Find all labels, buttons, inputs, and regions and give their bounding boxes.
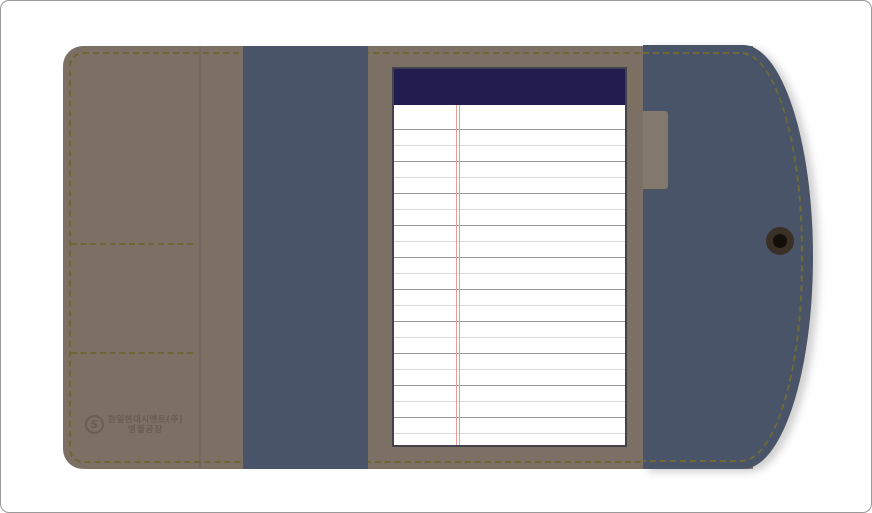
ruled-line xyxy=(394,177,625,178)
ruled-line xyxy=(394,417,625,418)
notepad-paper xyxy=(394,105,625,445)
artboard: S 한일현대시멘트(주) 영월공장 xyxy=(0,0,872,513)
ruled-line xyxy=(394,225,625,226)
ruled-line xyxy=(394,289,625,290)
ruled-line xyxy=(394,161,625,162)
red-margin-line xyxy=(459,105,460,445)
ruled-line xyxy=(394,129,625,130)
snap-button xyxy=(766,227,794,255)
ruled-line xyxy=(394,369,625,370)
logo-text: 한일현대시멘트(주) 영월공장 xyxy=(108,415,183,435)
logo-text-line2: 영월공장 xyxy=(128,425,163,435)
logo-letter: S xyxy=(91,419,99,430)
brand-logo: S 한일현대시멘트(주) 영월공장 xyxy=(85,415,183,435)
ruled-line xyxy=(394,193,625,194)
pen-tab xyxy=(643,111,668,189)
logo-text-line1: 한일현대시멘트(주) xyxy=(108,415,183,425)
ruled-line xyxy=(394,273,625,274)
left-panel-fold-line xyxy=(199,46,201,469)
spine-band xyxy=(243,46,368,469)
card-slot-stitch-bottom xyxy=(71,352,193,354)
ruled-line xyxy=(394,337,625,338)
ruled-line xyxy=(394,385,625,386)
ruled-line xyxy=(394,321,625,322)
card-slot-stitch-top xyxy=(71,243,193,245)
notepad-header-band xyxy=(394,69,625,105)
ruled-line xyxy=(394,353,625,354)
cover-flap xyxy=(643,45,813,469)
logo-circle-icon: S xyxy=(85,415,104,434)
ruled-line xyxy=(394,433,625,434)
snap-button-center xyxy=(773,234,787,248)
ruled-line xyxy=(394,257,625,258)
notepad xyxy=(392,67,627,447)
ruled-line xyxy=(394,241,625,242)
ruled-line xyxy=(394,401,625,402)
ruled-line xyxy=(394,305,625,306)
red-margin-line xyxy=(456,105,457,445)
ruled-line xyxy=(394,209,625,210)
ruled-line xyxy=(394,145,625,146)
